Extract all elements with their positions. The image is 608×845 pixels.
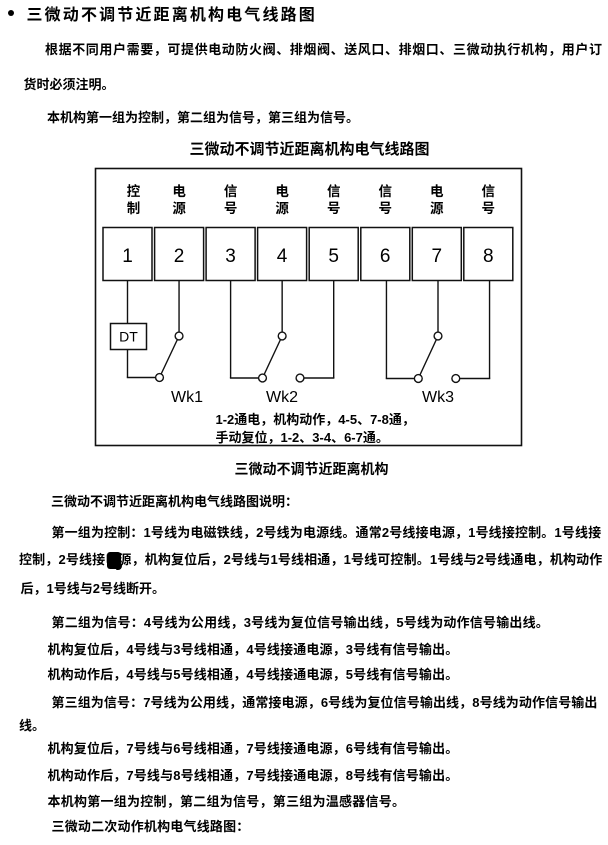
svg-text:Wk3: Wk3	[422, 389, 454, 406]
svg-text:5: 5	[328, 246, 339, 267]
svg-text:2: 2	[174, 246, 185, 267]
svg-text:Wk1: Wk1	[171, 389, 203, 406]
svg-text:7: 7	[432, 246, 443, 267]
svg-text:Wk2: Wk2	[266, 389, 298, 406]
svg-text:6: 6	[380, 246, 391, 267]
svg-text:DT: DT	[119, 329, 138, 345]
svg-text:1: 1	[122, 246, 133, 267]
svg-text:3: 3	[225, 246, 236, 267]
svg-text:4: 4	[277, 246, 288, 267]
svg-text:8: 8	[483, 246, 494, 267]
